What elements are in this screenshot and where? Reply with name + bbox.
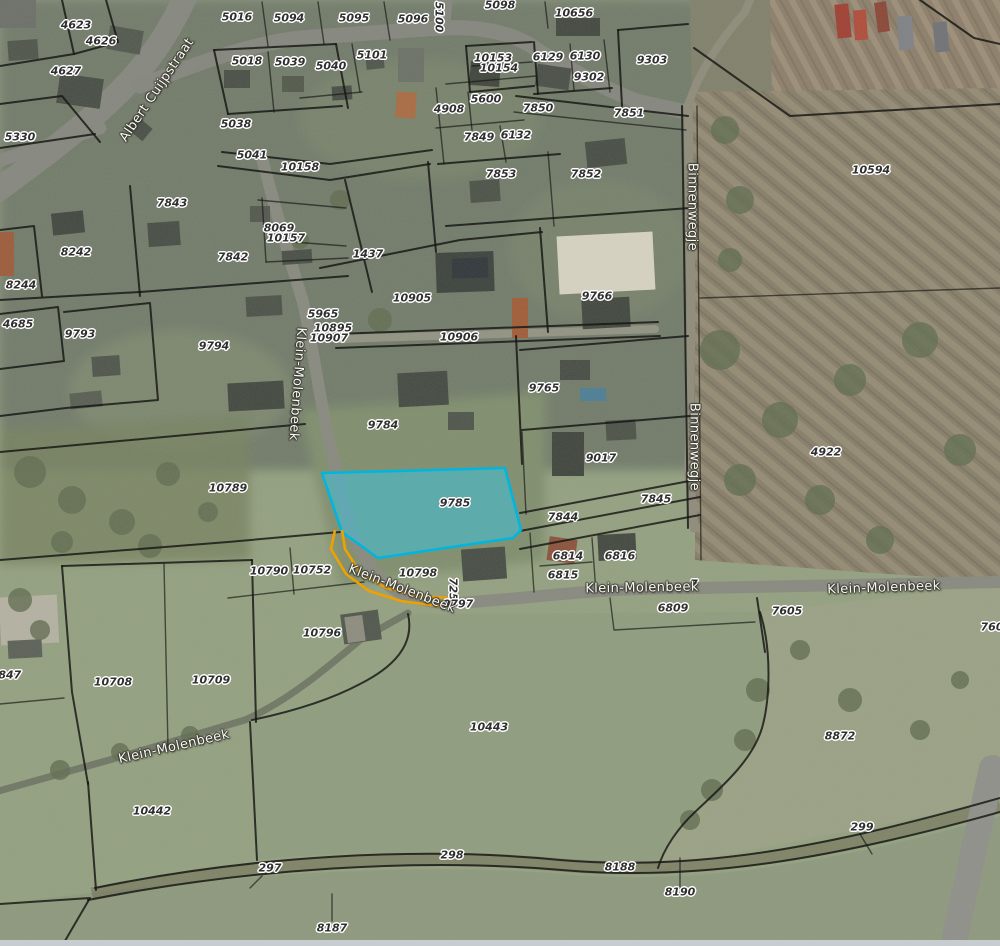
parcel-label-10154[interactable]: 10154 <box>480 62 518 75</box>
parcel-label-7845[interactable]: 7845 <box>641 493 672 506</box>
parcel-label-5039[interactable]: 5039 <box>275 56 306 69</box>
parcel-label-10708[interactable]: 10708 <box>94 676 132 689</box>
parcel-label-7850[interactable]: 7850 <box>523 102 554 115</box>
parcel-label-7843[interactable]: 7843 <box>157 197 188 210</box>
parcel-label-4908[interactable]: 4908 <box>434 103 465 116</box>
parcel-label-7853[interactable]: 7853 <box>486 168 517 181</box>
parcel-label-5038[interactable]: 5038 <box>221 118 252 131</box>
parcel-label-6130[interactable]: 6130 <box>570 50 601 63</box>
parcel-label-8188[interactable]: 8188 <box>605 861 636 874</box>
parcel-label-5100[interactable]: 5100 <box>433 2 446 33</box>
parcel-label-7852[interactable]: 7852 <box>571 168 602 181</box>
parcel-label-7849[interactable]: 7849 <box>464 131 495 144</box>
parcel-label-7605[interactable]: 7605 <box>772 605 803 618</box>
parcel-label-7851[interactable]: 7851 <box>614 107 645 120</box>
parcel-label-5094[interactable]: 5094 <box>274 12 305 25</box>
parcel-label-5018[interactable]: 5018 <box>232 55 263 68</box>
parcel-label-10594[interactable]: 10594 <box>852 164 890 177</box>
parcel-label-9017[interactable]: 9017 <box>586 452 617 465</box>
parcel-label-4623[interactable]: 4623 <box>61 19 92 32</box>
parcel-label-5016[interactable]: 5016 <box>222 11 253 24</box>
parcel-label-8190[interactable]: 8190 <box>665 886 696 899</box>
parcel-label-10656[interactable]: 10656 <box>555 7 593 20</box>
parcel-label-5041[interactable]: 5041 <box>237 149 268 162</box>
bottom-edge-strip <box>0 940 1000 946</box>
parcel-label-6809[interactable]: 6809 <box>658 602 689 615</box>
parcel-label-9766[interactable]: 9766 <box>582 290 613 303</box>
parcel-label-10905[interactable]: 10905 <box>393 292 431 305</box>
parcel-label-6815[interactable]: 6815 <box>548 569 579 582</box>
parcel-label-10158[interactable]: 10158 <box>281 161 319 174</box>
parcel-label-10789[interactable]: 10789 <box>209 482 247 495</box>
parcel-label-5101[interactable]: 5101 <box>357 49 388 62</box>
parcel-label-5040[interactable]: 5040 <box>316 60 347 73</box>
parcel-label-6129[interactable]: 6129 <box>533 51 564 64</box>
parcel-label-4685[interactable]: 4685 <box>3 318 34 331</box>
parcel-label-297[interactable]: 297 <box>259 862 282 875</box>
parcel-label-8872[interactable]: 8872 <box>825 730 856 743</box>
parcel-label-6814[interactable]: 6814 <box>553 550 584 563</box>
parcel-label-10907[interactable]: 10907 <box>310 332 348 345</box>
parcel-label-5096[interactable]: 5096 <box>398 13 429 26</box>
parcel-label-760[interactable]: 760 <box>981 621 1000 634</box>
parcel-label-7844[interactable]: 7844 <box>548 511 579 524</box>
parcel-label-6132[interactable]: 6132 <box>501 129 532 142</box>
parcel-label-10790[interactable]: 10790 <box>250 565 288 578</box>
parcel-label-9765[interactable]: 9765 <box>529 382 560 395</box>
parcel-label-5600[interactable]: 5600 <box>471 93 502 106</box>
parcel-label-10798[interactable]: 10798 <box>399 567 437 580</box>
parcel-label-10752[interactable]: 10752 <box>293 564 331 577</box>
parcel-label-4922[interactable]: 4922 <box>811 446 842 459</box>
parcel-label-4627[interactable]: 4627 <box>51 65 82 78</box>
parcel-label-9794[interactable]: 9794 <box>199 340 230 353</box>
parcel-label-9785[interactable]: 9785 <box>440 497 471 510</box>
parcel-label-8187[interactable]: 8187 <box>317 922 348 935</box>
parcel-label-299[interactable]: 299 <box>851 821 874 834</box>
parcel-label-7842[interactable]: 7842 <box>218 251 249 264</box>
parcel-label-8244[interactable]: 8244 <box>6 279 37 292</box>
parcel-label-10443[interactable]: 10443 <box>470 721 508 734</box>
parcel-label-0797[interactable]: 0797 <box>443 598 474 611</box>
parcel-label-9784[interactable]: 9784 <box>368 419 399 432</box>
parcel-label-10796[interactable]: 10796 <box>303 627 341 640</box>
parcel-label-298[interactable]: 298 <box>441 849 464 862</box>
parcel-label-6816[interactable]: 6816 <box>605 550 636 563</box>
parcel-label-10157[interactable]: 10157 <box>267 232 305 245</box>
map-viewport[interactable]: 4623462646275330501650945095509651005098… <box>0 0 1000 946</box>
parcel-label-9847[interactable]: 9847 <box>0 669 21 682</box>
parcel-label-5965[interactable]: 5965 <box>308 308 339 321</box>
parcel-label-5330[interactable]: 5330 <box>5 131 36 144</box>
parcel-label-1437[interactable]: 1437 <box>353 248 384 261</box>
parcel-label-9793[interactable]: 9793 <box>65 328 96 341</box>
parcel-label-7[interactable]: 7 <box>690 578 698 591</box>
parcel-label-10906[interactable]: 10906 <box>440 331 478 344</box>
parcel-label-10709[interactable]: 10709 <box>192 674 230 687</box>
parcel-label-5098[interactable]: 5098 <box>485 0 516 12</box>
parcel-label-9302[interactable]: 9302 <box>574 71 605 84</box>
parcel-label-5095[interactable]: 5095 <box>339 12 370 25</box>
parcel-label-10442[interactable]: 10442 <box>133 805 171 818</box>
parcel-label-9303[interactable]: 9303 <box>637 54 668 67</box>
parcel-label-4626[interactable]: 4626 <box>86 35 117 48</box>
parcel-label-8242[interactable]: 8242 <box>61 246 92 259</box>
